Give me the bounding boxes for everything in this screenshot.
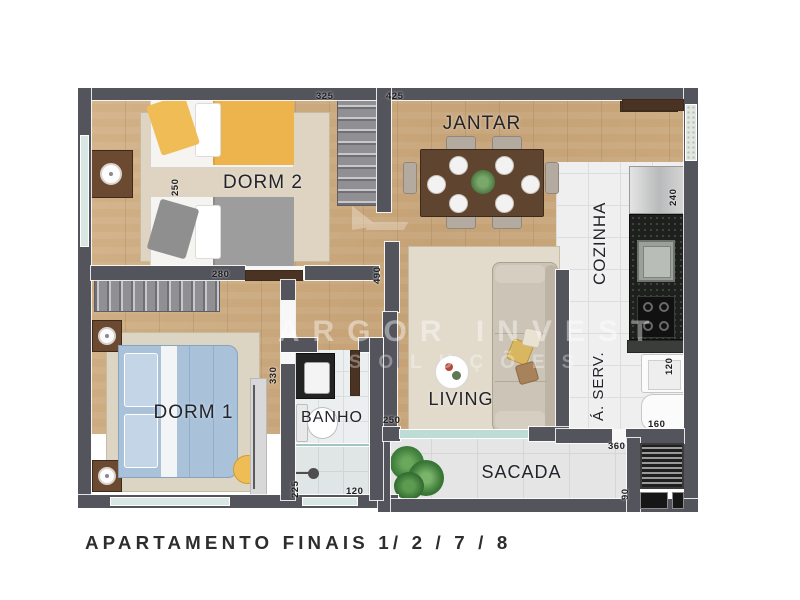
dorm1-lamp	[98, 467, 116, 485]
plate	[495, 156, 514, 175]
dorm1-lamp	[98, 327, 116, 345]
dim-living-opening: 250	[383, 415, 400, 426]
room-label-jantar: JANTAR	[437, 113, 527, 135]
ac-condenser-grille	[640, 443, 684, 489]
yellow-throw	[146, 94, 200, 156]
room-label-banho: BANHO	[296, 409, 368, 427]
yellow-duvet	[213, 95, 294, 165]
wall	[305, 266, 379, 280]
watermark-tagline: SOLUÇÕES	[250, 352, 690, 374]
table-centerpiece-plant	[471, 170, 495, 194]
utility-box	[640, 492, 668, 509]
desk-edge	[253, 385, 255, 489]
entry-door-leaf	[622, 99, 684, 111]
wall	[377, 88, 391, 212]
wall	[383, 427, 400, 441]
wall	[627, 438, 640, 512]
dim-aserv-width: 160	[648, 419, 665, 430]
dorm2-window	[80, 135, 89, 247]
sofa-arm	[495, 265, 545, 283]
sink-basin	[643, 246, 671, 278]
dim-dorm2-width: 325	[316, 91, 333, 102]
room-label-dorm2: DORM 2	[218, 172, 308, 194]
burner	[659, 302, 669, 312]
dorm2-bed-single-yellow	[150, 94, 294, 168]
wall	[556, 270, 569, 432]
dorm1-wardrobe-hangers	[94, 280, 220, 312]
balcony-sliding-door	[399, 429, 529, 439]
dorm2-wardrobe-hangers	[337, 92, 377, 206]
dining-chair	[545, 162, 559, 194]
pillow	[195, 205, 221, 259]
utility-box	[672, 492, 684, 509]
dim-dorm2-depth: 250	[170, 166, 181, 196]
watermark-brand: ARGOR INVEST	[250, 315, 690, 349]
pillow	[195, 103, 221, 157]
room-label-cozinha: COZINHA	[590, 193, 610, 293]
dining-chair	[403, 162, 417, 194]
plate	[495, 194, 514, 213]
dim-banho-depth: 225	[290, 468, 301, 498]
dim-cozinha-depth: 240	[668, 176, 679, 206]
dorm2-bed-single-gray	[150, 196, 294, 270]
room-label-sacada: SACADA	[474, 462, 569, 483]
dim-jantar-width: 425	[386, 91, 403, 102]
banho-window	[302, 497, 358, 506]
plate	[449, 156, 468, 175]
dim-sacada-width: 360	[608, 441, 625, 452]
floor-plan-image: DORM 2 JANTAR COZINHA DORM 1 BANHO LIVIN…	[0, 0, 800, 600]
dim-sacada-depth: 90	[620, 476, 631, 500]
pillow	[124, 353, 158, 407]
watermark-logo-mark	[346, 200, 410, 256]
room-label-living: LIVING	[420, 389, 502, 410]
kitchen-sink	[637, 240, 675, 282]
balcony-plant	[390, 442, 450, 502]
dining-table	[420, 149, 544, 217]
dim-social-depth: 490	[372, 252, 383, 284]
plate	[449, 194, 468, 213]
shower-head	[308, 468, 319, 479]
dorm2-lamp	[100, 163, 122, 185]
burner	[643, 302, 653, 312]
plan-caption: APARTAMENTO FINAIS 1/ 2 / 7 / 8	[85, 533, 511, 554]
dim-banho-width: 120	[346, 486, 363, 497]
gray-throw	[147, 198, 200, 259]
wall	[556, 429, 612, 443]
plate	[427, 175, 446, 194]
gray-duvet	[213, 197, 294, 267]
dim-dorm1-width: 280	[212, 269, 229, 280]
plate	[521, 175, 540, 194]
dorm1-desk-panel	[250, 378, 267, 495]
dorm1-window	[110, 497, 230, 506]
logo-shape	[366, 222, 409, 230]
room-label-dorm1: DORM 1	[146, 402, 241, 424]
plant-foliage	[394, 472, 424, 500]
entry-door-opening	[685, 104, 697, 161]
